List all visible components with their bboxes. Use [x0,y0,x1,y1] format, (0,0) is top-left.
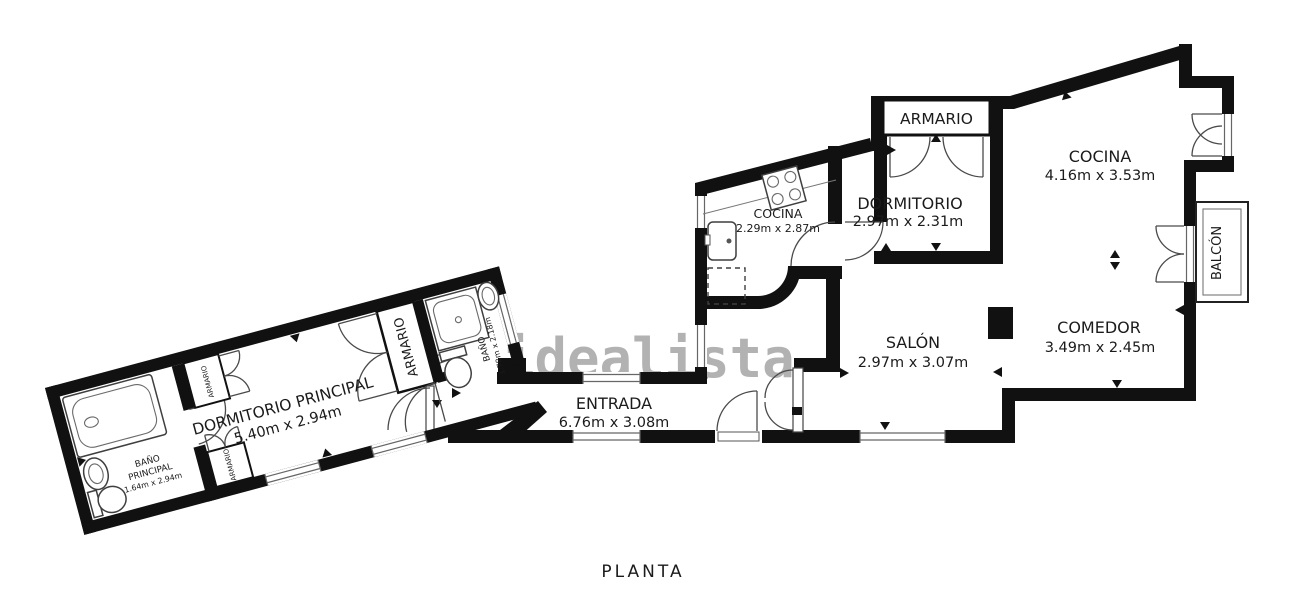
window-corridor-top [583,372,640,384]
window-corridor-bottom [573,430,640,443]
cocina-pequena-dims: 2.29m x 2.87m [736,222,820,235]
balcony: BALCÓN [1196,202,1248,302]
french-window-cocina [1192,114,1232,156]
balcony-door [1156,226,1194,282]
salon-label: SALÓN [886,333,940,352]
dormitorio-dims: 2.97m x 2.31m [853,214,964,230]
window-cocina-left-2 [695,325,707,367]
sink-icon [705,222,736,260]
floor-plan: idealista [0,0,1290,602]
dormitorio-label: DORMITORIO [857,194,962,213]
armario-dormitorio-label: ARMARIO [900,110,973,128]
comedor-dims: 3.49m x 2.45m [1045,340,1156,356]
toilet-bano-icon [439,346,474,390]
entrance-door [715,391,762,443]
window-salon-bottom [860,430,945,443]
entrada-label: ENTRADA [576,394,652,413]
window-cocina-left-1 [695,196,707,228]
cocina-pequena-label: COCINA [754,206,803,221]
pillar [988,307,1013,339]
entrada-dims: 6.76m x 3.08m [559,415,670,431]
balcon-label: BALCÓN [1209,226,1225,280]
cocina-label: COCINA [1069,147,1132,166]
cocina-dims: 4.16m x 3.53m [1045,168,1156,184]
floor-plan-page: idealista [0,0,1290,602]
comedor-label: COMEDOR [1057,318,1141,337]
left-wing: ARMARIO ARMARIO ARMARIO [45,266,538,534]
plan-title: PLANTA [601,562,684,582]
salon-dims: 2.97m x 3.07m [858,355,969,371]
